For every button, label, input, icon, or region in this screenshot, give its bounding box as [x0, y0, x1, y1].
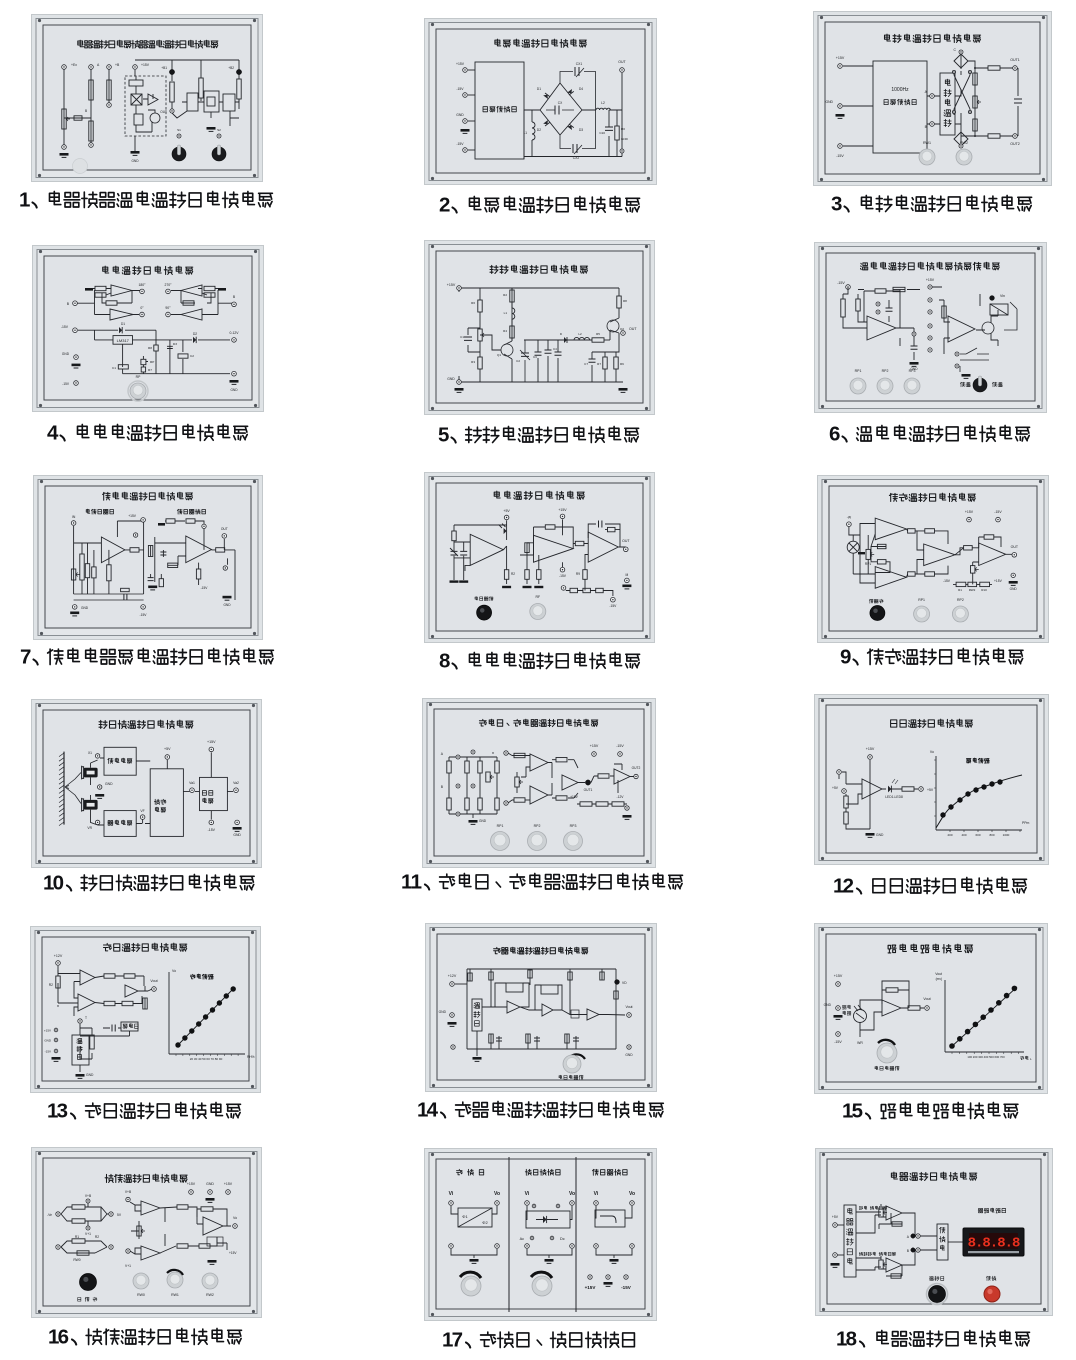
svg-text:RP2: RP2 — [882, 369, 889, 373]
svg-text:2: 2 — [439, 194, 450, 217]
svg-text:Vout: Vout — [923, 997, 930, 1001]
svg-text:RP2: RP2 — [957, 598, 964, 602]
svg-text:L2: L2 — [578, 332, 582, 336]
svg-text:+5V: +5V — [832, 786, 839, 790]
svg-text:+15V: +15V — [456, 62, 465, 66]
svg-text:GND: GND — [206, 1182, 214, 1186]
svg-text:+15V: +15V — [994, 579, 1003, 583]
svg-text:D3: D3 — [579, 128, 583, 132]
svg-text:GND: GND — [621, 137, 629, 141]
svg-text:18: 18 — [836, 1328, 857, 1351]
svg-text:Vo: Vo — [494, 1191, 500, 1197]
svg-text:RP: RP — [136, 375, 141, 379]
svg-text:RP1: RP1 — [855, 369, 862, 373]
svg-text:1000Hz: 1000Hz — [891, 87, 909, 93]
svg-text:Vi: Vi — [449, 1191, 454, 1197]
svg-text:LM317: LM317 — [117, 338, 130, 343]
svg-text:6: 6 — [829, 423, 840, 446]
svg-text:R2: R2 — [95, 1235, 99, 1239]
svg-text:+15V: +15V — [926, 278, 935, 282]
svg-text:+5V: +5V — [164, 747, 171, 751]
svg-text:+15V: +15V — [834, 974, 843, 978]
svg-text:V+1: V+1 — [85, 1232, 91, 1236]
svg-text:RW1: RW1 — [923, 141, 931, 145]
svg-text:+5V: +5V — [927, 788, 934, 792]
svg-text:GND: GND — [230, 388, 238, 392]
svg-text:R9: R9 — [620, 362, 624, 366]
svg-text:GND: GND — [81, 606, 89, 610]
svg-text:C7: C7 — [584, 362, 588, 366]
svg-text:RP3: RP3 — [909, 369, 916, 373]
svg-text:R5: R5 — [596, 332, 600, 336]
svg-text:-15V: -15V — [456, 87, 464, 91]
svg-text:+5V: +5V — [832, 1215, 839, 1219]
svg-text:RW2: RW2 — [969, 588, 976, 592]
svg-text:V+B: V+B — [85, 1194, 92, 1198]
svg-text:-15V: -15V — [62, 382, 70, 386]
svg-text:+15V: +15V — [44, 1029, 51, 1033]
svg-text:GND: GND — [479, 819, 487, 823]
svg-text:-15V: -15V — [559, 574, 567, 578]
svg-text:OUT: OUT — [221, 527, 228, 531]
svg-text:R2: R2 — [511, 572, 515, 576]
svg-text:4: 4 — [47, 422, 59, 445]
svg-text:C2: C2 — [516, 359, 520, 363]
svg-text:S2: S2 — [217, 128, 221, 132]
svg-text:-12V: -12V — [617, 795, 625, 799]
svg-text:400: 400 — [961, 833, 966, 837]
svg-text:OUT2: OUT2 — [632, 766, 641, 770]
svg-text:Vo: Vo — [569, 1191, 575, 1197]
svg-text:D2: D2 — [193, 332, 197, 336]
svg-text:17: 17 — [442, 1329, 463, 1352]
svg-text:Vo: Vo — [233, 1216, 237, 1220]
svg-text:Ac: Ac — [520, 1237, 525, 1241]
svg-text:D3: D3 — [173, 342, 177, 346]
svg-text:+Ex: +Ex — [71, 63, 77, 67]
svg-text:PPm: PPm — [1022, 821, 1030, 825]
svg-text:GND: GND — [131, 159, 139, 163]
svg-text:-15V: -15V — [834, 1040, 842, 1044]
svg-text:X1: X1 — [88, 751, 92, 755]
svg-text:GND: GND — [439, 1010, 447, 1014]
svg-text:Φ2: Φ2 — [482, 1220, 488, 1225]
svg-text:C1: C1 — [460, 335, 464, 339]
svg-text:RP1: RP1 — [918, 598, 925, 602]
svg-text:R2: R2 — [49, 983, 53, 987]
svg-text:RW0: RW0 — [73, 1258, 80, 1262]
svg-text:VF: VF — [140, 809, 144, 813]
svg-text:RH%: RH% — [247, 1055, 255, 1059]
svg-text:1: 1 — [19, 189, 30, 212]
svg-text:R6: R6 — [471, 301, 475, 305]
svg-text:-15V: -15V — [836, 154, 844, 158]
svg-text:WR: WR — [857, 1041, 863, 1045]
svg-text:15: 15 — [842, 1100, 863, 1123]
svg-text:B: B — [85, 109, 87, 113]
svg-text:+15V: +15V — [141, 63, 150, 67]
svg-text:+15V: +15V — [447, 283, 456, 287]
svg-text:RP: RP — [150, 360, 154, 364]
svg-text:+B: +B — [115, 63, 120, 67]
svg-text:R3: R3 — [471, 360, 475, 364]
svg-text:Vin: Vin — [1000, 294, 1005, 298]
svg-text:+12V: +12V — [448, 974, 457, 978]
svg-text:GND: GND — [824, 1003, 832, 1007]
svg-text:13: 13 — [47, 1100, 68, 1123]
svg-text:R1: R1 — [75, 1235, 79, 1239]
svg-text:OUT: OUT — [1011, 545, 1019, 549]
svg-text:OUT1: OUT1 — [584, 788, 593, 792]
svg-text:+5V: +5V — [503, 509, 510, 513]
svg-text:Vout: Vout — [625, 1005, 632, 1009]
svg-text:D4: D4 — [579, 87, 583, 91]
svg-text:-15V: -15V — [201, 586, 209, 590]
svg-text:OUT: OUT — [618, 60, 626, 64]
svg-text:GND: GND — [825, 100, 833, 104]
svg-text:Vi: Vi — [525, 1191, 530, 1197]
svg-text:10: 10 — [43, 872, 64, 895]
svg-text:L2: L2 — [601, 101, 605, 105]
svg-text:-15V: -15V — [208, 828, 216, 832]
svg-text:RF: RF — [535, 595, 540, 599]
svg-text:800: 800 — [989, 833, 994, 837]
svg-text:GND: GND — [876, 833, 884, 837]
svg-text:GND: GND — [62, 352, 70, 356]
svg-text:LED1-LED8: LED1-LED8 — [885, 795, 903, 799]
svg-text:+15V: +15V — [836, 56, 845, 60]
svg-text:C4: C4 — [553, 347, 557, 351]
svg-text:12: 12 — [833, 875, 854, 898]
svg-text:VR: VR — [87, 826, 92, 830]
svg-text:+12V: +12V — [54, 954, 63, 958]
svg-text:Dc: Dc — [560, 1237, 565, 1241]
svg-text:OUT1: OUT1 — [1010, 58, 1020, 62]
svg-text:GND: GND — [223, 603, 231, 607]
svg-text:Vo: Vo — [930, 750, 934, 754]
svg-text:GND: GND — [456, 113, 464, 117]
svg-text:+15V: +15V — [866, 747, 875, 751]
svg-text:GND: GND — [44, 1039, 52, 1043]
svg-text:1000: 1000 — [1003, 833, 1010, 837]
svg-text:C3: C3 — [533, 355, 537, 359]
svg-text:20 30 40 50 60 70 80 90: 20 30 40 50 60 70 80 90 — [190, 1057, 223, 1061]
svg-text:100 200 300 400 500 600 700: 100 200 300 400 500 600 700 — [967, 1055, 1005, 1059]
svg-text:R1: R1 — [958, 588, 962, 592]
svg-text:+15V: +15V — [229, 1251, 237, 1255]
svg-text:-15V: -15V — [837, 281, 845, 285]
svg-text:270°: 270° — [164, 283, 172, 287]
svg-text:8: 8 — [439, 650, 450, 673]
svg-text:VD: VD — [622, 981, 627, 985]
svg-text:+B2: +B2 — [228, 66, 234, 70]
svg-text:GND: GND — [447, 377, 455, 381]
svg-text:R7: R7 — [148, 368, 152, 372]
svg-text:IN: IN — [72, 515, 76, 519]
svg-text:Va2: Va2 — [233, 781, 239, 785]
svg-text:T: T — [85, 1016, 87, 1020]
svg-text:RP2: RP2 — [534, 824, 541, 828]
svg-text:+15V: +15V — [585, 1285, 597, 1290]
svg-text:GND: GND — [233, 833, 241, 837]
svg-text:-15V: -15V — [943, 579, 951, 583]
svg-text:Vo: Vo — [629, 1191, 635, 1197]
svg-text:RP3: RP3 — [570, 824, 577, 828]
svg-text:RP1: RP1 — [497, 824, 504, 828]
svg-text:8.8.8.8: 8.8.8.8 — [968, 1236, 1020, 1252]
svg-text:CX1: CX1 — [576, 62, 583, 66]
svg-text:-15V: -15V — [61, 325, 69, 329]
svg-text:OUT2: OUT2 — [1010, 142, 1020, 146]
svg-text:OUT: OUT — [629, 327, 637, 331]
svg-text:OUT: OUT — [160, 110, 167, 114]
svg-text:Va1: Va1 — [189, 781, 195, 785]
svg-text:M: M — [626, 573, 629, 577]
svg-text:-15V: -15V — [140, 613, 148, 617]
svg-text:+15V: +15V — [207, 740, 216, 744]
svg-text:R8: R8 — [623, 299, 627, 303]
svg-text:-15V: -15V — [994, 510, 1002, 514]
svg-text:GND: GND — [86, 1073, 94, 1077]
svg-text:14: 14 — [417, 1099, 439, 1122]
svg-text:Vout: Vout — [935, 972, 942, 976]
svg-text:L1: L1 — [504, 311, 508, 315]
svg-text:GND: GND — [625, 1053, 633, 1057]
svg-text:Q1: Q1 — [497, 353, 501, 357]
svg-text:GND: GND — [105, 782, 113, 786]
svg-text:600: 600 — [975, 833, 980, 837]
svg-text:R4: R4 — [503, 329, 507, 333]
svg-text:(mv): (mv) — [936, 977, 942, 981]
svg-text:-Ve: -Ve — [47, 1213, 52, 1217]
svg-text:Vout: Vout — [150, 979, 157, 983]
svg-text:R8: R8 — [148, 346, 152, 350]
svg-text:-15V: -15V — [45, 1050, 51, 1054]
svg-text:200: 200 — [947, 833, 952, 837]
svg-text:V+1: V+1 — [125, 1264, 131, 1268]
svg-text:RW2: RW2 — [206, 1293, 214, 1297]
svg-text:+15V: +15V — [128, 514, 137, 518]
svg-text:D2: D2 — [537, 128, 541, 132]
svg-text:+15V: +15V — [965, 510, 974, 514]
svg-text:R9: R9 — [576, 572, 580, 576]
svg-text:S1: S1 — [177, 128, 181, 132]
svg-text:90°: 90° — [165, 306, 171, 310]
svg-text:GND: GND — [1010, 587, 1018, 591]
svg-text:-15V: -15V — [609, 604, 617, 608]
svg-text:+15V: +15V — [558, 508, 567, 512]
svg-text:D1: D1 — [121, 322, 125, 326]
svg-text:-15V: -15V — [616, 744, 624, 748]
svg-text:C1: C1 — [112, 366, 116, 370]
svg-text:V+B: V+B — [125, 1190, 132, 1194]
svg-text:Φ1: Φ1 — [462, 1214, 468, 1219]
svg-text:Q2: Q2 — [620, 327, 624, 331]
svg-text:9: 9 — [840, 646, 851, 669]
svg-text:D1: D1 — [537, 87, 541, 91]
svg-text:+15V: +15V — [570, 795, 579, 799]
svg-text:R0: R0 — [621, 127, 625, 131]
svg-text:3: 3 — [831, 193, 842, 216]
svg-text:RW1: RW1 — [171, 1293, 179, 1297]
svg-text:Vo: Vo — [172, 969, 176, 973]
svg-text:+15V: +15V — [187, 1182, 196, 1186]
svg-text:RW0: RW0 — [137, 1293, 145, 1297]
svg-text:11: 11 — [401, 871, 422, 894]
svg-text:R2: R2 — [503, 293, 507, 297]
svg-text:RW2: RW2 — [960, 141, 968, 145]
svg-text:0-12V: 0-12V — [229, 331, 239, 335]
svg-text:R7: R7 — [597, 362, 601, 366]
svg-text:-15V: -15V — [456, 142, 464, 146]
svg-text:-15V: -15V — [621, 1285, 632, 1290]
svg-text:+B1: +B1 — [161, 66, 167, 70]
svg-text:16: 16 — [48, 1326, 69, 1349]
svg-text:7: 7 — [20, 646, 31, 669]
svg-text:+15V: +15V — [590, 744, 599, 748]
svg-text:180°: 180° — [138, 283, 146, 287]
svg-text:R10: R10 — [981, 588, 987, 592]
svg-text:C10: C10 — [599, 131, 605, 135]
svg-text:OUT: OUT — [622, 539, 630, 543]
svg-text:+15V: +15V — [224, 1182, 233, 1186]
svg-text:5: 5 — [438, 424, 449, 447]
svg-text:Vi: Vi — [594, 1191, 599, 1197]
svg-text:C2: C2 — [190, 354, 194, 358]
